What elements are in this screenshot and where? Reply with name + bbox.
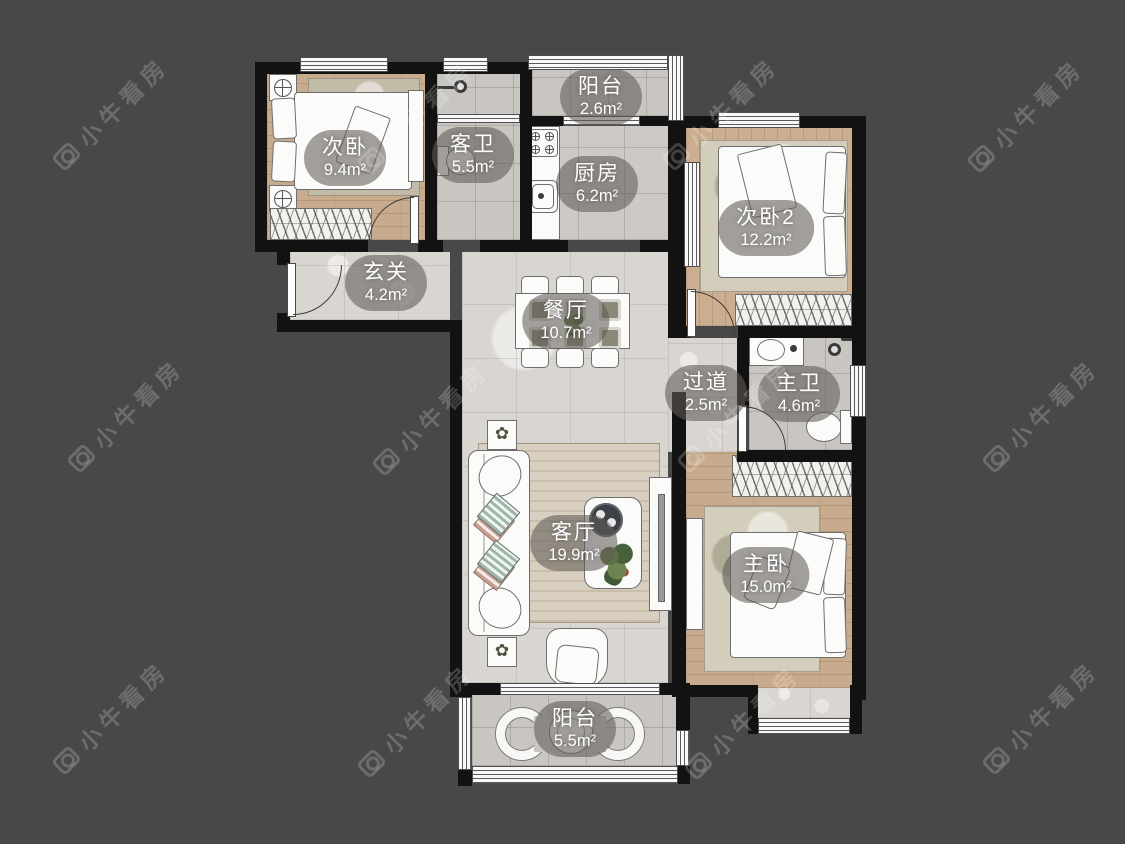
bay-window-post — [748, 688, 758, 734]
floor-bay-window-sill — [756, 688, 850, 718]
floorplan-canvas: ✿ ✿ — [0, 0, 1125, 844]
room-label-balcony-south: 阳台5.5m² — [534, 701, 616, 757]
faucet-icon — [790, 345, 797, 352]
dining-chair — [521, 348, 549, 368]
room-label-balcony-north: 阳台2.6m² — [560, 69, 642, 125]
shower-glass-partition — [437, 114, 520, 123]
burner-icon — [531, 132, 540, 141]
room-label-secondary-bedroom: 次卧9.4m² — [304, 130, 386, 186]
window — [668, 55, 684, 121]
wardrobe-secondary-bedroom — [270, 208, 372, 240]
bed-pillow — [271, 140, 297, 182]
vanity-sink — [757, 339, 785, 361]
window — [718, 112, 800, 128]
camera-logo-icon — [356, 748, 387, 779]
camera-logo-icon — [51, 745, 82, 776]
window — [472, 766, 678, 784]
wall — [738, 326, 866, 338]
camera-logo-icon — [966, 143, 997, 174]
wall — [255, 62, 532, 74]
window — [458, 697, 472, 770]
bay-window — [758, 718, 850, 734]
room-label-living-room: 客厅19.9m² — [530, 515, 617, 571]
speaker-icon — [274, 79, 292, 97]
room-label-hallway: 过道2.5m² — [665, 365, 747, 421]
room-label-secondary-bedroom-2: 次卧212.2m² — [718, 200, 814, 256]
balcony-post — [458, 683, 472, 697]
dining-chair — [556, 348, 584, 368]
burner-icon — [545, 145, 554, 154]
watermark: 小牛看房 — [976, 350, 1105, 479]
watermark: 小牛看房 — [61, 350, 190, 479]
wall — [686, 116, 718, 128]
wardrobe-secondary-bedroom-2 — [735, 294, 852, 326]
watermark: 小牛看房 — [961, 50, 1090, 179]
wall — [737, 450, 866, 462]
sliding-door — [500, 683, 660, 695]
watermark: 小牛看房 — [46, 652, 175, 781]
side-table-flower: ✿ — [487, 420, 517, 450]
burner-icon — [531, 145, 540, 154]
wall — [277, 245, 290, 265]
bed-pillow — [823, 216, 847, 277]
dresser-panel — [408, 90, 424, 182]
room-label-master-bedroom: 主卧15.0m² — [722, 547, 809, 603]
watermark: 小牛看房 — [976, 652, 1105, 781]
shower-head-icon — [454, 80, 467, 93]
room-label-dining-room: 餐厅10.7m² — [522, 293, 609, 349]
camera-logo-icon — [981, 745, 1012, 776]
tv-panel-master — [686, 518, 703, 630]
wall — [850, 685, 866, 697]
dining-chair — [591, 348, 619, 368]
wall — [450, 320, 462, 697]
balcony-post — [676, 764, 690, 784]
window — [443, 57, 488, 72]
balcony-post — [676, 695, 690, 730]
wall — [255, 62, 267, 252]
camera-logo-icon — [981, 443, 1012, 474]
window — [300, 57, 388, 72]
speaker-icon — [274, 190, 292, 208]
bay-window-post — [850, 697, 862, 734]
side-table-flower: ✿ — [487, 637, 517, 667]
camera-logo-icon — [371, 446, 402, 477]
wall — [672, 392, 686, 697]
window — [850, 365, 866, 417]
tv-screen — [658, 494, 665, 602]
wall — [480, 240, 568, 252]
shower-head-icon — [828, 343, 841, 356]
balcony-post — [458, 770, 472, 786]
camera-logo-icon — [51, 141, 82, 172]
wall — [520, 62, 532, 240]
room-label-kitchen: 厨房6.2m² — [556, 156, 638, 212]
room-label-guest-bathroom: 客卫5.5m² — [432, 127, 514, 183]
bed-pillow — [271, 97, 297, 139]
room-label-foyer: 玄关4.2m² — [345, 255, 427, 311]
wall — [255, 240, 368, 252]
watermark: 小牛看房 — [46, 48, 175, 177]
camera-logo-icon — [66, 443, 97, 474]
window — [528, 55, 668, 70]
faucet-icon — [538, 193, 544, 199]
bed-pillow — [822, 151, 847, 214]
bed-pillow — [823, 597, 847, 654]
burner-icon — [545, 132, 554, 141]
armchair-pillow — [554, 644, 600, 686]
wall — [277, 320, 462, 332]
wall — [532, 116, 563, 126]
room-label-master-bathroom: 主卫4.6m² — [758, 366, 840, 422]
window-panel — [684, 162, 700, 267]
window — [676, 730, 690, 766]
